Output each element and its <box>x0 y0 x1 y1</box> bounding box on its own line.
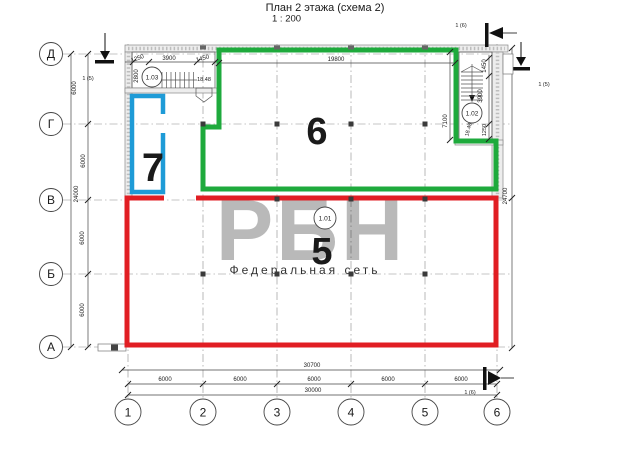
dim-label: 1250 <box>482 124 488 136</box>
zone-label: 7 <box>142 146 164 190</box>
section-arrow-down-icon <box>100 51 110 60</box>
section-arrow-left-icon <box>489 27 503 39</box>
section-mark-bar <box>485 23 489 47</box>
dim-label: 6000 <box>233 377 247 383</box>
dim-label: 24000 <box>74 185 80 202</box>
axis-col-label: 2 <box>200 406 207 420</box>
dim-label: 3900 <box>162 56 176 62</box>
dim-label: 6000 <box>80 303 86 317</box>
section-mark-bar <box>95 60 114 64</box>
room-tag-label: 1.03 <box>146 74 159 81</box>
zone-6-outline <box>203 50 496 189</box>
page-title: План 2 этажа (схема 2) <box>266 2 385 14</box>
dim-label: 24700 <box>503 187 509 204</box>
room-tag-label: 1.02 <box>466 110 479 117</box>
column-marker <box>349 197 354 202</box>
wall-protrusion <box>503 54 513 74</box>
column-marker <box>423 197 428 202</box>
dim-label: 6000 <box>307 377 321 383</box>
dim-label: 6000 <box>72 81 78 95</box>
column-marker <box>349 272 354 277</box>
dim-label: 18.48 <box>464 122 473 137</box>
axis-col-label: 1 <box>125 406 132 420</box>
entry-step <box>111 345 118 351</box>
dim-label: 18.48 <box>197 77 211 83</box>
dim-label: 3900 <box>478 89 484 103</box>
dim-label: 1 (6) <box>455 23 466 29</box>
dim-label: 1 (6) <box>464 390 475 396</box>
wall-column-marker <box>422 46 428 50</box>
section-mark-bar <box>512 67 530 71</box>
zone-label: 5 <box>311 231 332 273</box>
section-arrow-down-icon <box>516 57 526 66</box>
watermark-subtitle: Федеральная сеть <box>230 263 381 277</box>
dim-label: 19800 <box>328 57 345 63</box>
axis-row-label: Б <box>47 267 55 281</box>
dim-label: 30700 <box>304 363 321 369</box>
wall-column-marker <box>200 46 206 50</box>
axis-col-label: 4 <box>348 406 355 420</box>
dim-label: 7100 <box>443 114 449 128</box>
axis-row-label: Д <box>47 47 55 61</box>
column-marker <box>349 122 354 127</box>
column-marker <box>275 122 280 127</box>
column-marker <box>275 197 280 202</box>
dim-label: 6000 <box>80 231 86 245</box>
zone-outlines <box>127 50 496 345</box>
axis-row-label: Г <box>48 117 55 131</box>
scale-label: 1 : 200 <box>272 14 301 25</box>
room-tag-label: 1.01 <box>319 215 332 222</box>
column-marker <box>275 272 280 277</box>
section-arrow-right-icon <box>488 371 501 385</box>
dim-label: 6000 <box>454 377 468 383</box>
section-mark-bar <box>483 367 487 390</box>
stair-landing-line <box>461 66 472 72</box>
dim-label: 1 (5) <box>538 82 549 88</box>
axis-row-label: В <box>47 193 55 207</box>
wall-column-marker <box>348 46 354 50</box>
dim-label: 1450 <box>482 59 488 73</box>
stair-bottom-wall <box>125 88 220 93</box>
axis-col-label: 6 <box>494 406 501 420</box>
dim-label: 1 (5) <box>82 76 93 82</box>
wall-column-marker <box>274 46 280 50</box>
axis-row-label: А <box>47 340 55 354</box>
column-marker <box>201 122 206 127</box>
axis-col-label: 5 <box>422 406 429 420</box>
axis-col-label: 3 <box>274 406 281 420</box>
zone-label: 6 <box>306 111 327 153</box>
column-marker <box>201 272 206 277</box>
dim-label: 6000 <box>381 377 395 383</box>
dim-label: 6000 <box>81 154 87 168</box>
dim-label: 6000 <box>158 377 172 383</box>
dim-label: 30000 <box>305 388 322 394</box>
column-marker <box>423 122 428 127</box>
dim-label: 2800 <box>134 69 140 83</box>
column-marker <box>423 272 428 277</box>
dim-label: 1250 <box>130 54 145 64</box>
floor-plan-drawing: РБН Федеральная сеть 567 1.031.021.01 ДГ… <box>0 0 618 465</box>
